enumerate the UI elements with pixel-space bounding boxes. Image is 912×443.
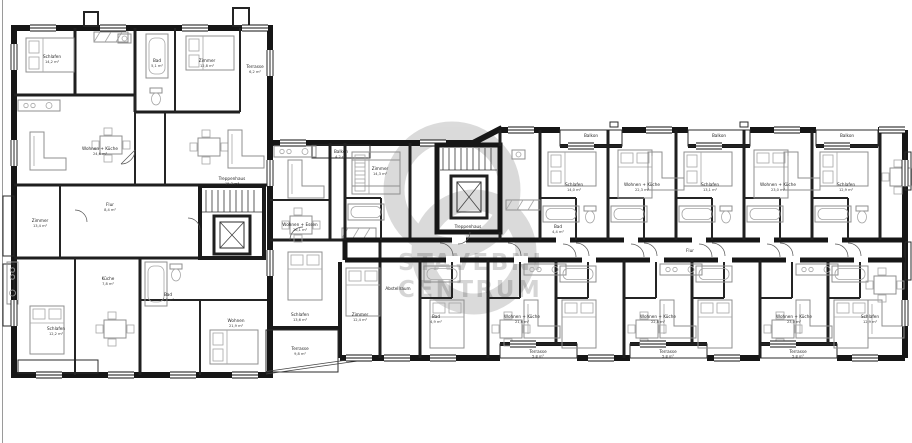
room-label: Flur: [686, 248, 694, 253]
room-label: Zimmer12,4 m²: [352, 312, 369, 322]
svg-text:Wohnen + Küche: Wohnen + Küche: [760, 182, 796, 187]
svg-text:21,9 m²: 21,9 m²: [229, 324, 244, 328]
room-label: Zimmer13,4 m²: [32, 218, 49, 228]
svg-text:Terrasse: Terrasse: [658, 349, 677, 354]
svg-text:Schlafen: Schlafen: [861, 314, 879, 319]
svg-text:22,8 m²: 22,8 m²: [651, 320, 666, 324]
svg-text:5,8 m²: 5,8 m²: [532, 355, 544, 359]
svg-text:26,1 m²: 26,1 m²: [293, 228, 308, 232]
svg-text:Terrasse: Terrasse: [245, 64, 264, 69]
svg-text:9,8 m²: 9,8 m²: [294, 352, 306, 356]
svg-text:Terrasse: Terrasse: [528, 349, 547, 354]
svg-text:15,3 m²: 15,3 m²: [225, 182, 240, 186]
svg-text:14,3 m²: 14,3 m²: [373, 172, 388, 176]
svg-text:Terrasse: Terrasse: [788, 349, 807, 354]
room-label: Terrasse5,8 m²: [788, 349, 807, 359]
svg-text:14,0 m²: 14,0 m²: [567, 188, 582, 192]
room-label: Bad4,9 m²: [430, 314, 442, 324]
svg-text:Zimmer: Zimmer: [352, 312, 369, 317]
svg-text:Bad: Bad: [554, 224, 562, 229]
svg-text:13,1 m²: 13,1 m²: [703, 188, 718, 192]
svg-text:Balkon: Balkon: [712, 133, 726, 138]
room-label: Balkon: [712, 133, 726, 138]
svg-text:Abstellraum: Abstellraum: [385, 286, 410, 291]
svg-text:Balkon: Balkon: [334, 149, 348, 154]
svg-text:Schlafen: Schlafen: [837, 182, 855, 187]
room-label: Flur8,4 m²: [104, 202, 116, 212]
room-label: Bad4,4 m²: [552, 224, 564, 234]
svg-text:12,8 m²: 12,8 m²: [200, 64, 215, 68]
svg-text:4,2 m²: 4,2 m²: [335, 155, 347, 159]
svg-text:Terrasse: Terrasse: [290, 346, 309, 351]
svg-text:Schlafen: Schlafen: [565, 182, 583, 187]
svg-text:5,1 m²: 5,1 m²: [151, 64, 163, 68]
floorplan-drawing: STAVEBNI CENTRUM: [0, 0, 912, 443]
room-label: Schlafen12,9 m²: [837, 182, 855, 192]
room-label: Schlafen13,6 m²: [291, 312, 309, 322]
room-label: Treppenhaus: [454, 224, 482, 229]
svg-text:7,8 m²: 7,8 m²: [102, 282, 114, 286]
svg-text:Balkon: Balkon: [840, 133, 854, 138]
svg-text:5,8 m²: 5,8 m²: [662, 355, 674, 359]
svg-text:23,0 m²: 23,0 m²: [771, 188, 786, 192]
svg-text:Wohnen + Küche: Wohnen + Küche: [624, 182, 660, 187]
svg-text:Wohnen + Küche: Wohnen + Küche: [504, 314, 540, 319]
svg-text:12,9 m²: 12,9 m²: [863, 320, 878, 324]
svg-text:8,4 m²: 8,4 m²: [104, 208, 116, 212]
svg-text:5,8 m²: 5,8 m²: [792, 355, 804, 359]
svg-text:4,4 m²: 4,4 m²: [552, 230, 564, 234]
floorplan-sheet: STAVEBNI CENTRUM: [0, 0, 912, 443]
left-stairs-steps: [202, 190, 262, 212]
svg-text:Treppenhaus: Treppenhaus: [454, 224, 482, 229]
room-label: Schlafen14,2 m²: [43, 54, 61, 64]
svg-text:Schlafen: Schlafen: [291, 312, 309, 317]
svg-text:Zimmer: Zimmer: [372, 166, 389, 171]
svg-text:14,2 m²: 14,2 m²: [45, 60, 60, 64]
svg-text:6,2 m²: 6,2 m²: [249, 70, 261, 74]
room-label: Schlafen12,2 m²: [47, 326, 65, 336]
room-label: Wohnen21,9 m²: [228, 318, 245, 328]
room-label: Abstellraum: [385, 286, 410, 291]
room-label: Zimmer14,3 m²: [372, 166, 389, 176]
svg-text:Wohnen + Küche: Wohnen + Küche: [640, 314, 676, 319]
svg-text:12,9 m²: 12,9 m²: [839, 188, 854, 192]
svg-text:Bad: Bad: [432, 314, 440, 319]
svg-text:12,4 m²: 12,4 m²: [353, 318, 368, 322]
room-label: Terrasse6,2 m²: [245, 64, 264, 74]
svg-text:4,6 m²: 4,6 m²: [162, 298, 174, 302]
svg-text:Schlafen: Schlafen: [43, 54, 61, 59]
room-label: Balkon: [584, 133, 598, 138]
svg-text:13,4 m²: 13,4 m²: [33, 224, 48, 228]
left-elevator-icon: [214, 216, 250, 254]
svg-text:24,6 m²: 24,6 m²: [93, 152, 108, 156]
svg-text:Wohnen + Küche: Wohnen + Küche: [776, 314, 812, 319]
room-label: Terrasse9,8 m²: [290, 346, 309, 356]
room-label: Terrasse5,8 m²: [658, 349, 677, 359]
room-label: Bad5,1 m²: [151, 58, 163, 68]
svg-text:Flur: Flur: [106, 202, 114, 207]
svg-text:21,6 m²: 21,6 m²: [515, 320, 530, 324]
svg-text:Wohnen: Wohnen: [228, 318, 245, 323]
svg-text:Treppenhaus: Treppenhaus: [218, 176, 246, 181]
svg-text:Zimmer: Zimmer: [199, 58, 216, 63]
room-label: Zimmer12,8 m²: [199, 58, 216, 68]
room-label: Schlafen14,0 m²: [565, 182, 583, 192]
left-stair-core: [200, 186, 264, 258]
svg-text:Küche: Küche: [102, 276, 115, 281]
svg-text:Balkon: Balkon: [584, 133, 598, 138]
svg-text:Schlafen: Schlafen: [701, 182, 719, 187]
svg-text:12,2 m²: 12,2 m²: [49, 332, 64, 336]
svg-text:Zimmer: Zimmer: [32, 218, 49, 223]
svg-text:13,6 m²: 13,6 m²: [293, 318, 308, 322]
svg-text:Bad: Bad: [164, 292, 172, 297]
svg-text:23,0 m²: 23,0 m²: [787, 320, 802, 324]
svg-text:Bad: Bad: [153, 58, 161, 63]
room-label: Schlafen13,1 m²: [701, 182, 719, 192]
room-label: Schlafen12,9 m²: [861, 314, 879, 324]
svg-text:4,9 m²: 4,9 m²: [430, 320, 442, 324]
svg-text:22,3 m²: 22,3 m²: [635, 188, 650, 192]
room-label: Küche7,8 m²: [102, 276, 115, 286]
room-label: Balkon: [840, 133, 854, 138]
room-label: Terrasse5,8 m²: [528, 349, 547, 359]
svg-text:Wohnen + Essen: Wohnen + Essen: [282, 222, 318, 227]
svg-text:Schlafen: Schlafen: [47, 326, 65, 331]
svg-text:Flur: Flur: [686, 248, 694, 253]
svg-text:Wohnen + Küche: Wohnen + Küche: [82, 146, 118, 151]
